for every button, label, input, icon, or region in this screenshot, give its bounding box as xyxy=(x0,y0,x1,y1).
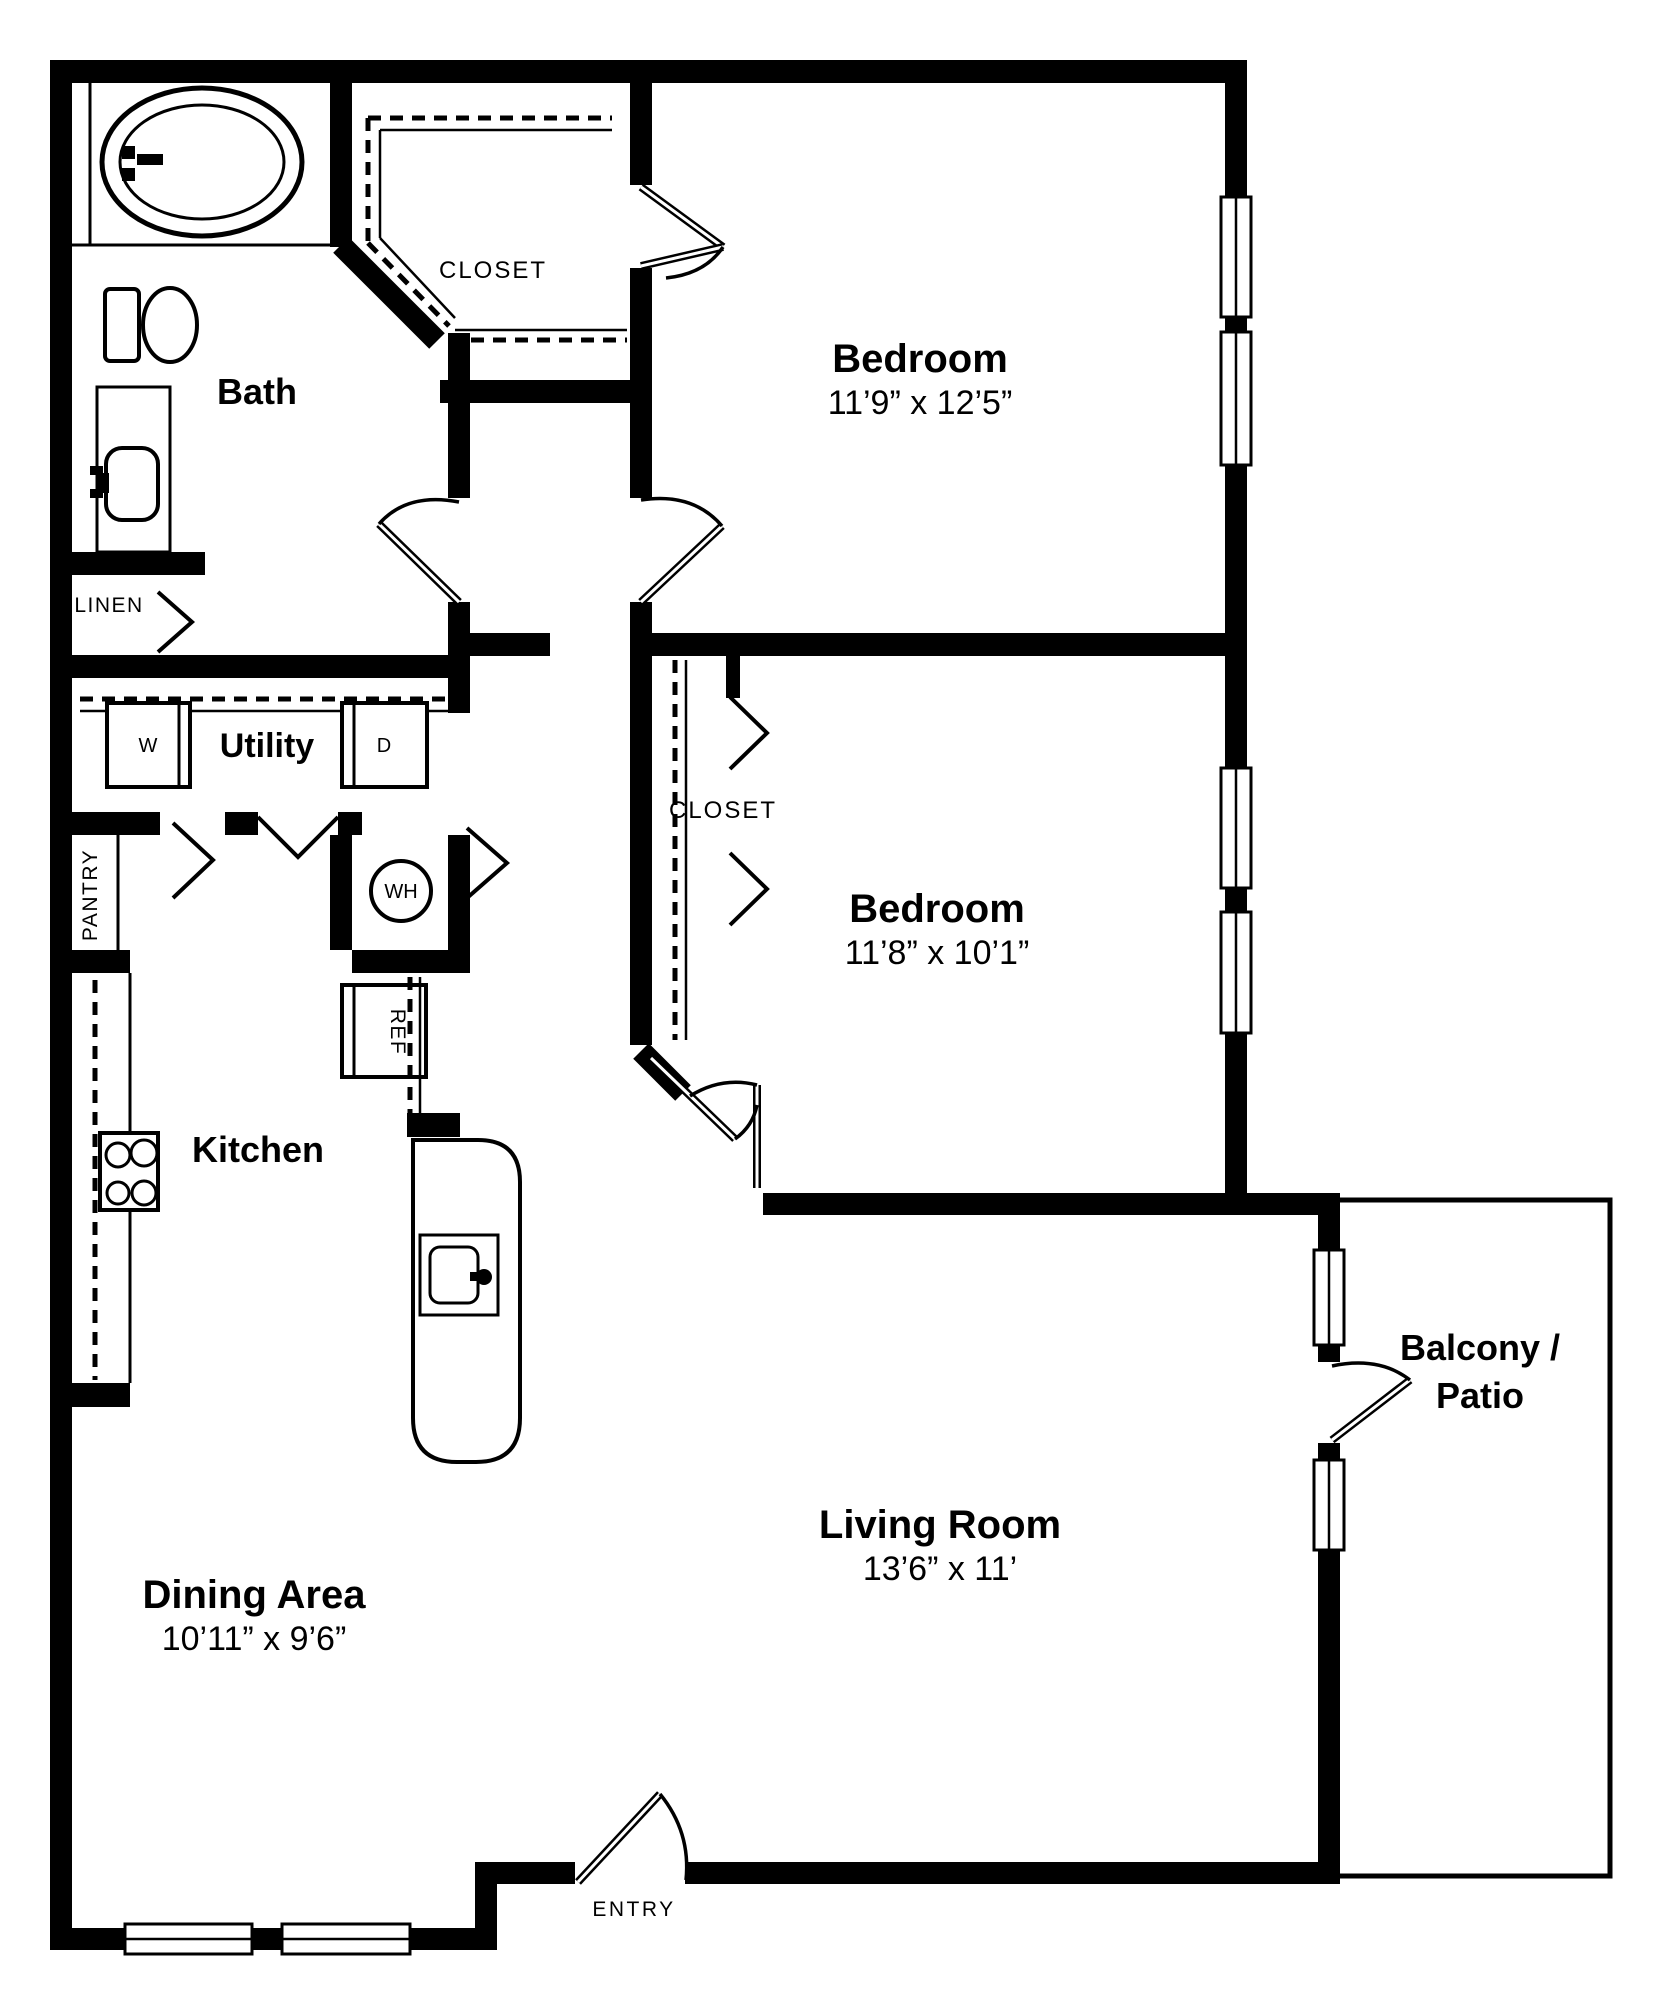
vanity-sink-icon xyxy=(90,387,170,552)
windows xyxy=(125,197,1344,1954)
bath-fixtures xyxy=(72,83,330,552)
pantry-label: PANTRY xyxy=(79,849,102,941)
linen-label: LINEN xyxy=(74,594,143,617)
window-bedroom1-lower xyxy=(1221,332,1251,465)
master-closet-label: CLOSET xyxy=(439,257,547,284)
balcony-label-line2: Patio xyxy=(1436,1375,1524,1416)
window-bedroom1-upper xyxy=(1221,197,1251,317)
balcony-label-line1: Balcony / xyxy=(1400,1327,1560,1368)
balcony-door xyxy=(1332,1363,1410,1440)
window-dining-left xyxy=(125,1924,252,1954)
dryer-label: D xyxy=(377,735,391,757)
living-room-dimensions: 13’6” x 11’ xyxy=(863,1550,1017,1588)
pantry-bifold-door xyxy=(173,823,213,898)
master-closet-doors xyxy=(641,187,723,278)
island-counter xyxy=(413,1140,520,1462)
living-room-label: Living Room xyxy=(819,1503,1061,1547)
window-dining-right xyxy=(282,1924,410,1954)
walls xyxy=(50,60,1340,1950)
bedroom1-label: Bedroom xyxy=(832,337,1008,381)
refrigerator-label: REF xyxy=(386,1009,409,1056)
washer-label: W xyxy=(139,735,158,757)
island-sink-icon xyxy=(420,1235,498,1315)
water-heater-label: WH xyxy=(384,881,417,903)
stove-icon xyxy=(100,1133,158,1210)
kitchen-fixtures xyxy=(95,973,520,1462)
bedroom1-dimensions: 11’9” x 12’5” xyxy=(828,384,1013,422)
floor-plan: Bath CLOSET Bedroom 11’9” x 12’5” LINEN … xyxy=(0,0,1675,2010)
bedroom2-label: Bedroom xyxy=(849,887,1025,931)
bedroom2-closet-shelving xyxy=(675,660,686,1040)
bath-label: Bath xyxy=(217,371,297,412)
window-balcony-upper xyxy=(1314,1250,1344,1345)
window-bedroom2-lower xyxy=(1221,912,1251,1033)
bathtub-icon xyxy=(102,88,302,236)
hall-bifold-door xyxy=(467,828,507,898)
entry-label: ENTRY xyxy=(592,1898,675,1921)
utility-bifold-door xyxy=(258,817,338,857)
dining-area-label: Dining Area xyxy=(143,1573,367,1617)
utility-label: Utility xyxy=(220,727,315,765)
floor-plan-page: Bath CLOSET Bedroom 11’9” x 12’5” LINEN … xyxy=(0,0,1675,2010)
window-bedroom2-upper xyxy=(1221,768,1251,888)
bedroom2-door xyxy=(651,1058,757,1188)
dining-area-dimensions: 10’11” x 9’6” xyxy=(162,1620,347,1658)
toilet-icon xyxy=(105,288,197,362)
closet2-bifold-lower xyxy=(730,853,767,925)
bath-door xyxy=(379,500,459,602)
bedroom2-closet-label: CLOSET xyxy=(669,797,777,824)
kitchen-label: Kitchen xyxy=(192,1129,324,1170)
closet2-bifold-upper xyxy=(730,697,767,769)
linen-bifold-door xyxy=(158,592,192,652)
entry-door xyxy=(578,1794,687,1882)
window-balcony-lower xyxy=(1314,1460,1344,1550)
bedroom1-door xyxy=(641,498,722,602)
refrigerator-icon xyxy=(342,985,426,1077)
bedroom2-dimensions: 11’8” x 10’1” xyxy=(845,934,1030,972)
